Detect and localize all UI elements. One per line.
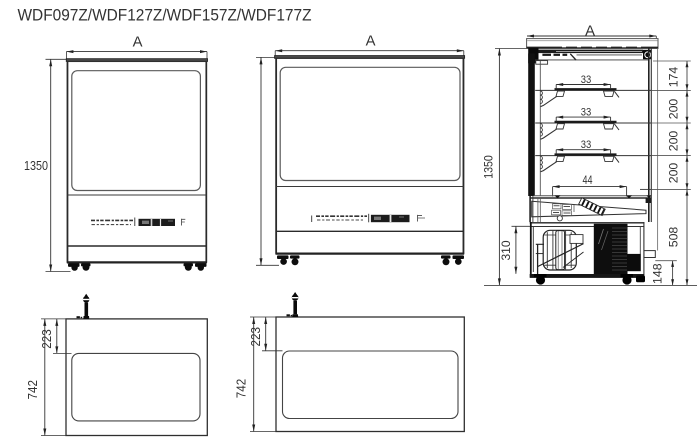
svg-text:223: 223 bbox=[248, 327, 263, 347]
svg-text:200: 200 bbox=[666, 99, 680, 120]
svg-text:508: 508 bbox=[666, 227, 680, 248]
svg-text:742: 742 bbox=[234, 379, 249, 399]
svg-text:200: 200 bbox=[666, 131, 680, 152]
svg-text:A: A bbox=[585, 23, 595, 39]
svg-text:310: 310 bbox=[499, 240, 513, 260]
svg-text:A: A bbox=[133, 35, 143, 51]
svg-text:44: 44 bbox=[583, 175, 593, 187]
svg-text:A: A bbox=[366, 34, 376, 50]
svg-text:33: 33 bbox=[581, 74, 592, 86]
svg-text:1350: 1350 bbox=[24, 158, 48, 173]
svg-text:200: 200 bbox=[666, 163, 680, 184]
svg-text:148: 148 bbox=[651, 263, 665, 284]
svg-text:33: 33 bbox=[581, 107, 592, 119]
svg-text:1350: 1350 bbox=[481, 155, 495, 179]
svg-text:742: 742 bbox=[25, 380, 40, 400]
svg-text:223: 223 bbox=[39, 329, 54, 349]
svg-text:174: 174 bbox=[666, 67, 680, 88]
svg-text:33: 33 bbox=[581, 139, 592, 151]
svg-text:WDF097Z/WDF127Z/WDF157Z/WDF177: WDF097Z/WDF127Z/WDF157Z/WDF177Z bbox=[18, 6, 312, 24]
